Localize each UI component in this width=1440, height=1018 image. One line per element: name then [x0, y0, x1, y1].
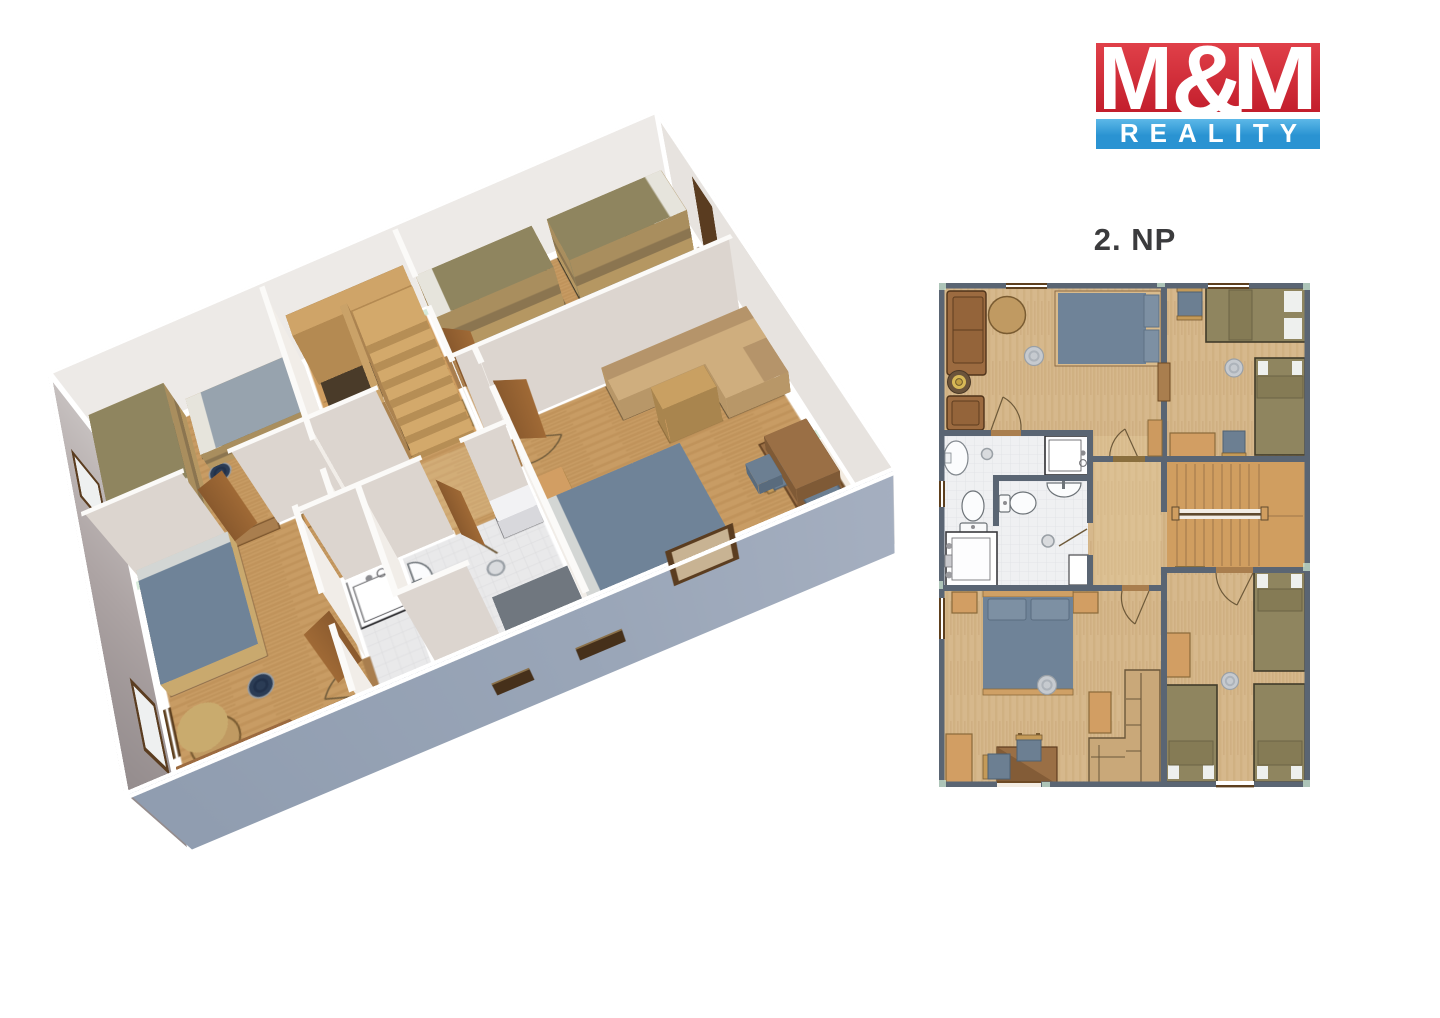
- svg-text:M: M: [1232, 43, 1318, 129]
- svg-text:REALITY: REALITY: [1120, 118, 1308, 148]
- svg-text:M: M: [1098, 43, 1173, 129]
